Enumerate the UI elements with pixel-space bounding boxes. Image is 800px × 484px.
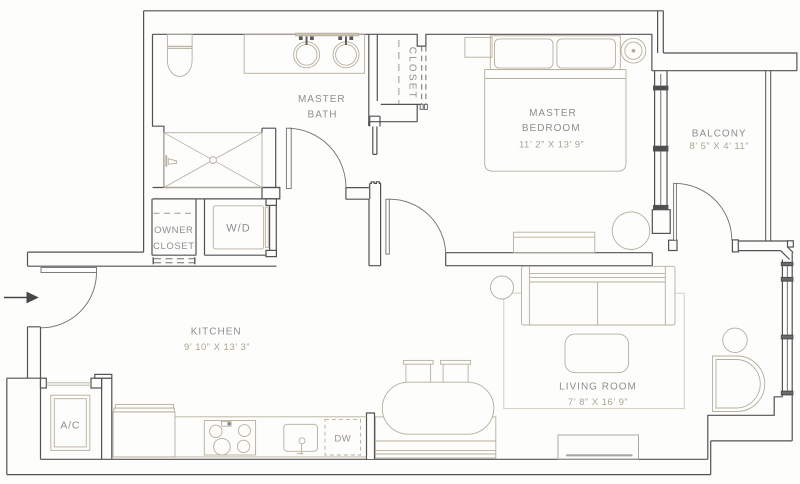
svg-text:A/C: A/C (60, 420, 80, 432)
svg-text:W/D: W/D (226, 223, 250, 235)
svg-text:LIVING ROOM: LIVING ROOM (559, 381, 637, 392)
svg-text:BATH: BATH (308, 110, 338, 121)
svg-text:MASTER: MASTER (529, 108, 577, 119)
svg-text:MASTER: MASTER (298, 94, 346, 105)
svg-text:DW: DW (334, 433, 351, 444)
svg-text:CLOSET: CLOSET (407, 47, 418, 100)
svg-text:CLOSET: CLOSET (153, 241, 195, 252)
svg-text:OWNER: OWNER (154, 225, 193, 236)
svg-text:8’ 5” X 4’ 11”: 8’ 5” X 4’ 11” (689, 141, 748, 152)
svg-text:KITCHEN: KITCHEN (191, 326, 242, 337)
svg-text:11’ 2” X 13’ 9”: 11’ 2” X 13’ 9” (519, 139, 584, 150)
svg-text:7’ 8” X 16’ 9”: 7’ 8” X 16’ 9” (568, 397, 628, 408)
svg-text:BEDROOM: BEDROOM (522, 123, 581, 134)
svg-text:BALCONY: BALCONY (692, 128, 747, 139)
svg-text:9’ 10” X 13’ 3”: 9’ 10” X 13’ 3” (184, 342, 250, 353)
